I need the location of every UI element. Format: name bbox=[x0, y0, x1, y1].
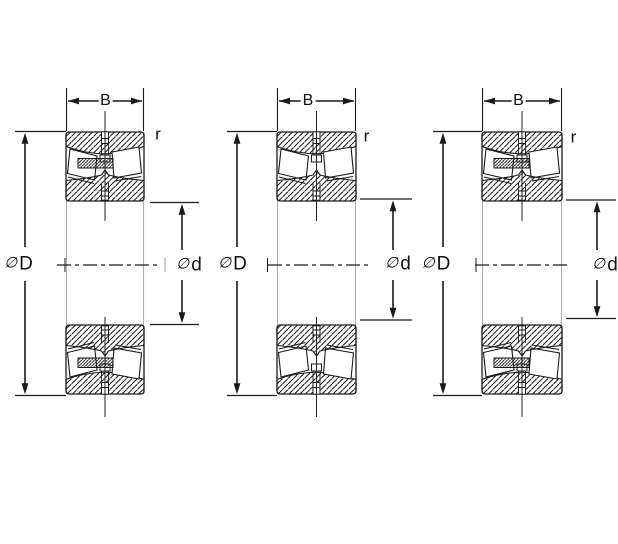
spherical-roller-right bbox=[324, 147, 354, 178]
outer-diameter-label: ∅D bbox=[420, 255, 453, 274]
outer-diameter-letter: D bbox=[437, 255, 451, 274]
dimension-arrowhead bbox=[22, 133, 29, 144]
bearing-drawing: B B B r r r ∅D ∅D ∅D ∅d ∅d ∅d bbox=[0, 0, 618, 544]
dimension-arrowhead bbox=[234, 133, 241, 144]
dimension-arrowhead bbox=[594, 306, 601, 317]
diameter-symbol: ∅ bbox=[385, 256, 398, 271]
dimension-arrowhead bbox=[440, 133, 447, 144]
center-guide-lip bbox=[494, 159, 529, 169]
outer-diameter-letter: D bbox=[19, 255, 33, 274]
bore-diameter-label: ∅d bbox=[590, 255, 618, 274]
dimension-arrowhead bbox=[179, 312, 186, 323]
spherical-roller-right bbox=[324, 348, 354, 379]
bearing-view-bearing-middle bbox=[227, 88, 412, 417]
center-guide-lip bbox=[494, 358, 529, 368]
bore-diameter-label: ∅d bbox=[383, 255, 413, 274]
width-letter: B bbox=[303, 93, 314, 109]
radius-letter: r bbox=[364, 127, 370, 144]
dimension-arrowhead bbox=[279, 98, 290, 105]
dimension-arrowhead bbox=[594, 201, 601, 212]
bore-diameter-letter: d bbox=[607, 255, 618, 274]
corner-radius-label: r bbox=[362, 127, 372, 144]
bearing-diagram-svg bbox=[0, 0, 618, 544]
width-dimension-label: B bbox=[98, 93, 113, 109]
bore-diameter-label: ∅d bbox=[174, 255, 204, 274]
dimension-arrowhead bbox=[131, 98, 142, 105]
width-dimension-label: B bbox=[511, 93, 526, 109]
diameter-symbol: ∅ bbox=[592, 256, 605, 271]
corner-radius-label: r bbox=[569, 129, 579, 146]
bore-diameter-letter: d bbox=[400, 255, 411, 274]
width-letter: B bbox=[513, 93, 524, 109]
corner-radius-label: r bbox=[153, 126, 163, 143]
bearing-view-bearing-left bbox=[15, 88, 199, 417]
width-dimension-label: B bbox=[301, 93, 316, 109]
bore-diameter-letter: d bbox=[191, 255, 202, 274]
dimension-arrowhead bbox=[68, 98, 79, 105]
dimension-arrowhead bbox=[484, 98, 495, 105]
spherical-roller-right bbox=[529, 147, 560, 178]
width-letter: B bbox=[100, 93, 111, 109]
diameter-symbol: ∅ bbox=[218, 256, 231, 271]
dimension-arrowhead bbox=[549, 98, 560, 105]
radius-letter: r bbox=[155, 126, 161, 143]
outer-diameter-label: ∅D bbox=[2, 255, 35, 274]
spherical-roller-right bbox=[112, 348, 142, 379]
bearing-view-bearing-right bbox=[433, 88, 616, 417]
dimension-arrowhead bbox=[440, 383, 447, 394]
diameter-symbol: ∅ bbox=[176, 256, 189, 271]
outer-diameter-label: ∅D bbox=[216, 255, 249, 274]
dimension-arrowhead bbox=[179, 204, 186, 215]
spherical-roller-right bbox=[529, 348, 560, 379]
dimension-arrowhead bbox=[390, 200, 397, 211]
dimension-arrowhead bbox=[22, 383, 29, 394]
diameter-symbol: ∅ bbox=[422, 256, 435, 271]
radius-letter: r bbox=[571, 129, 577, 146]
diameter-symbol: ∅ bbox=[4, 256, 17, 271]
center-guide-lip bbox=[78, 358, 113, 368]
outer-diameter-letter: D bbox=[233, 255, 247, 274]
center-guide-lip bbox=[78, 159, 113, 169]
spherical-roller-right bbox=[112, 147, 142, 178]
dimension-arrowhead bbox=[390, 308, 397, 319]
dimension-arrowhead bbox=[234, 383, 241, 394]
dimension-arrowhead bbox=[343, 98, 354, 105]
